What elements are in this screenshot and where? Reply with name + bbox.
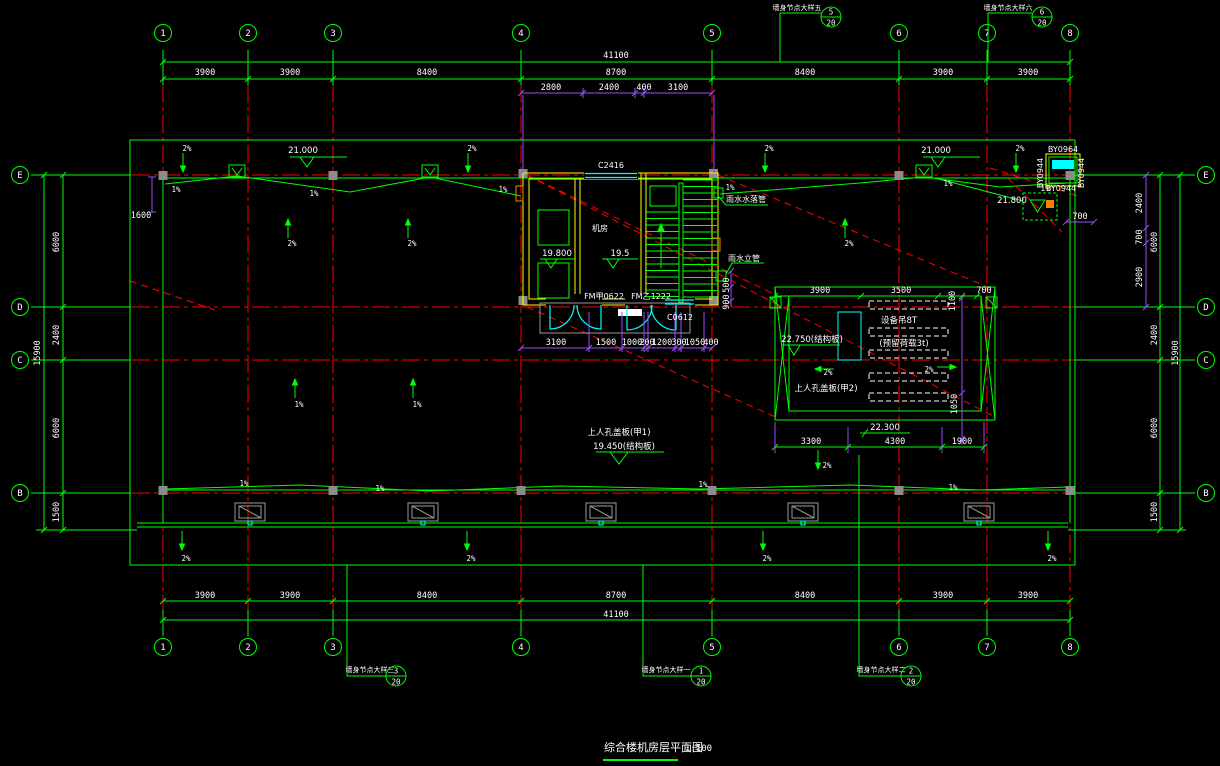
annotation-text: 1050 <box>685 338 705 348</box>
annotation-text: 21.000 <box>288 146 318 156</box>
annotation-text: 1100 <box>948 291 958 311</box>
grid-bubble-label: 5 <box>709 29 714 39</box>
annotation-text: BY0964 <box>1048 145 1078 154</box>
callout-number: 2 <box>909 667 914 676</box>
grid-bubble-label: E <box>17 171 22 181</box>
stair-landing <box>650 186 676 206</box>
annotation-text: 3900 <box>810 286 830 296</box>
cad-floor-plan-canvas: 12345678 12345678 EDCB EDCB 411003900390… <box>0 0 1220 766</box>
annotation-text: BY0944 <box>1077 158 1086 188</box>
callout-label: 墙身节点大样六 <box>984 3 1033 12</box>
detail-callout-1: 墙身节点大样一 1 20 <box>642 565 712 687</box>
annotation-text: 8400 <box>417 591 437 601</box>
annotation-text: 6000 <box>1150 418 1160 438</box>
annotation-text: FM甲0622 <box>584 292 624 301</box>
callout-label: 墙身节点大样三 <box>346 665 395 674</box>
annotation-text: 3100 <box>668 83 688 93</box>
grid-bubbles-top: 12345678 <box>155 25 1079 42</box>
annotation-text: 19.450(结构板) <box>593 441 655 452</box>
annotation-text: 2% <box>466 554 476 563</box>
grid-bubble-label: D <box>17 303 22 313</box>
annotation-text: 2% <box>182 144 192 153</box>
scupper-vent-icon <box>964 503 994 525</box>
grid-bubble-label: B <box>17 489 22 499</box>
floor-plan-drawing: 12345678 12345678 EDCB EDCB 411003900390… <box>0 0 1220 766</box>
stair-treads-left <box>645 212 679 297</box>
annotation-text: 1% <box>412 400 422 409</box>
annotation-text: 41100 <box>603 51 629 61</box>
annotation-text: 700 <box>1072 212 1087 222</box>
annotation-text: 2% <box>407 239 417 248</box>
annotation-text: 8400 <box>795 68 815 78</box>
annotation-text: 1600 <box>131 211 151 221</box>
annotation-text: 400 <box>636 83 651 93</box>
grid-bubble-label: B <box>1203 489 1208 499</box>
annotation-text: 15900 <box>33 340 43 366</box>
annotation-text: FM乙1222 <box>631 292 671 301</box>
annotation-text: 700 <box>976 286 991 296</box>
stair-rail <box>679 183 683 302</box>
annotation-text: 900 <box>722 294 732 309</box>
callout-label: 墙身节点大样一 <box>642 665 691 674</box>
annotation-text: 设备吊8T <box>881 315 918 326</box>
annotation-text: 3900 <box>195 68 215 78</box>
annotation-text: (预留荷载3t) <box>879 338 928 349</box>
annotation-text: 6000 <box>1150 232 1160 252</box>
annotation-text: 22.750(结构板) <box>781 334 843 345</box>
callout-label: 墙身节点大样二 <box>857 665 906 674</box>
callout-sheet: 20 <box>826 19 836 28</box>
roof-boundary <box>130 140 1075 565</box>
annotation-text: 21.800 <box>997 196 1027 206</box>
detail-callout-3: 墙身节点大样三 3 20 <box>346 565 407 687</box>
annotation-text: 1% <box>698 480 708 489</box>
grid-bubble-label: 6 <box>896 29 901 39</box>
grid-bubble-label: 3 <box>330 29 335 39</box>
drawing-scale: 1:100 <box>685 744 712 754</box>
annotation-text: 2% <box>822 461 832 470</box>
callout-number: 5 <box>829 8 834 17</box>
annotation-text: 2% <box>762 554 772 563</box>
grid-bubble-label: 2 <box>245 29 250 39</box>
annotation-text: 1% <box>498 185 508 194</box>
grid-bubble-label: C <box>1203 356 1208 366</box>
annotation-text: 21.000 <box>921 146 951 156</box>
annotation-text: 2400 <box>599 83 619 93</box>
callout-number: 3 <box>394 667 399 676</box>
annotation-text: 1200 <box>652 338 672 348</box>
equipment-block <box>538 263 569 298</box>
annotation-text: 2900 <box>1135 267 1145 287</box>
grid-bubble-label: 6 <box>896 643 901 653</box>
annotation-text: 1% <box>1040 184 1050 193</box>
grid-bubble-label: 4 <box>518 29 523 39</box>
annotation-text: 3500 <box>891 286 911 296</box>
grid-bubble-label: E <box>1203 171 1208 181</box>
annotation-text: 1% <box>171 185 181 194</box>
annotation-text: 3100 <box>546 338 566 348</box>
annotation-text: 8400 <box>417 68 437 78</box>
grid-bubbles-left: EDCB <box>12 167 29 502</box>
callout-sheet: 20 <box>906 678 916 687</box>
annotation-text: 19.5 <box>611 249 630 259</box>
annotation-text: 4300 <box>885 437 905 447</box>
annotation-text: 雨水立管 <box>728 253 760 263</box>
annotation-text: 1500 <box>1150 502 1160 522</box>
grid-bubble-label: 3 <box>330 643 335 653</box>
annotation-text: 22.300 <box>870 423 900 433</box>
annotation-text: 1% <box>239 479 249 488</box>
annotation-text: 8700 <box>606 591 626 601</box>
grid-bubble-label: 7 <box>984 29 989 39</box>
annotation-text: 3900 <box>1018 68 1038 78</box>
annotation-text: 2% <box>764 144 774 153</box>
grid-bubble-label: 2 <box>245 643 250 653</box>
annotation-text: 1% <box>948 483 958 492</box>
grid-bubble-label: 5 <box>709 643 714 653</box>
grid-bubble-label: D <box>1203 303 1208 313</box>
double-door-1 <box>550 305 601 329</box>
annotation-text: 1% <box>294 400 304 409</box>
annotation-text: 3900 <box>280 68 300 78</box>
annotation-text: 3300 <box>801 437 821 447</box>
equipment-block <box>538 210 569 245</box>
grid-bubble-label: 8 <box>1067 643 1072 653</box>
detail-callout-6: 墙身节点大样六 6 20 <box>984 3 1053 62</box>
annotation-text: 19.800 <box>542 249 572 259</box>
annotation-text: 2% <box>1047 554 1057 563</box>
annotation-text: 雨水水落管 <box>726 194 766 204</box>
annotation-text: 500 <box>722 277 732 292</box>
annotation-text: 400 <box>703 338 718 348</box>
callout-sheet: 20 <box>1037 19 1047 28</box>
grid-bubble-label: 7 <box>984 643 989 653</box>
annotation-text: 2% <box>924 365 934 374</box>
detail-callout-5: 墙身节点大样五 5 20 <box>773 3 842 62</box>
annotation-text: 2% <box>844 239 854 248</box>
grid-bubbles-bottom: 12345678 <box>155 639 1079 656</box>
annotation-text: 1% <box>725 183 735 192</box>
grid-bubble-label: 8 <box>1067 29 1072 39</box>
annotation-text: 2% <box>181 554 191 563</box>
annotation-text: 8700 <box>606 68 626 78</box>
annotation-text: 上人孔盖板(甲2) <box>794 383 857 394</box>
annotation-text: 3900 <box>195 591 215 601</box>
slope-labels: 2%2%2%2%2%2%2%1%1%2%2%2%2%2%2%2%1%1%1%1%… <box>171 144 1057 563</box>
grid-bubble-label: 1 <box>160 29 165 39</box>
annotation-text: 1% <box>943 179 953 188</box>
wall-niche-orange <box>516 186 523 201</box>
annotation-text: 2400 <box>52 325 62 345</box>
annotation-text: 41100 <box>603 610 629 620</box>
dimension-texts: 4110039003900840087008400390039002800240… <box>33 51 1181 620</box>
scupper-vent-icon <box>235 503 265 525</box>
component-labels: C2416C0612FM甲0622FM乙1222机房雨水水落管雨水立管BY096… <box>584 145 1086 322</box>
grid-bubble-label: 1 <box>160 643 165 653</box>
annotation-text: 1900 <box>952 437 972 447</box>
annotation-text: 15900 <box>1171 340 1181 366</box>
annotation-text: 3900 <box>933 68 953 78</box>
annotation-text: 2400 <box>1150 325 1160 345</box>
grid-bubble-label: C <box>17 356 22 366</box>
annotation-text: 8400 <box>795 591 815 601</box>
title-block: 综合楼机房层平面图 1:100 <box>603 740 712 760</box>
annotation-text: 6000 <box>52 232 62 252</box>
annotation-text: 1% <box>375 484 385 493</box>
scupper-vent-icon <box>788 503 818 525</box>
grid-bubbles-right: EDCB <box>1198 167 1215 502</box>
annotation-text: 700 <box>1135 229 1145 244</box>
annotation-text: BY0944 <box>1046 184 1076 193</box>
scupper-vent-icon <box>586 503 616 525</box>
annotation-text: 3900 <box>280 591 300 601</box>
annotation-text: 2% <box>1015 144 1025 153</box>
annotation-text: 1500 <box>596 338 616 348</box>
annotation-text: 上人孔盖板(甲1) <box>587 427 650 438</box>
scupper-vent-icon <box>408 503 438 525</box>
annotation-text: 1% <box>309 189 319 198</box>
annotation-text: 2800 <box>541 83 561 93</box>
callout-number: 6 <box>1040 8 1045 17</box>
grid-bubble-label: 4 <box>518 643 523 653</box>
callout-sheet: 20 <box>696 678 706 687</box>
annotation-text: C0612 <box>667 313 693 322</box>
annotation-text: 2400 <box>1135 193 1145 213</box>
roof-outline <box>130 140 1075 565</box>
annotation-text: 6000 <box>52 418 62 438</box>
annotation-text: 机房 <box>592 223 608 233</box>
callout-number: 1 <box>699 667 704 676</box>
level-triangle <box>1030 200 1045 212</box>
callout-sheet: 20 <box>391 678 401 687</box>
annotation-text: C2416 <box>598 161 624 170</box>
annotation-text: 2% <box>467 144 477 153</box>
annotation-text: 3900 <box>1018 591 1038 601</box>
callout-label: 墙身节点大样五 <box>773 3 822 12</box>
annotation-text: 2% <box>287 239 297 248</box>
annotation-text: 1050 <box>950 394 960 414</box>
annotation-text: 1500 <box>52 502 62 522</box>
annotation-text: 3900 <box>933 591 953 601</box>
annotation-text: 2% <box>823 368 833 377</box>
